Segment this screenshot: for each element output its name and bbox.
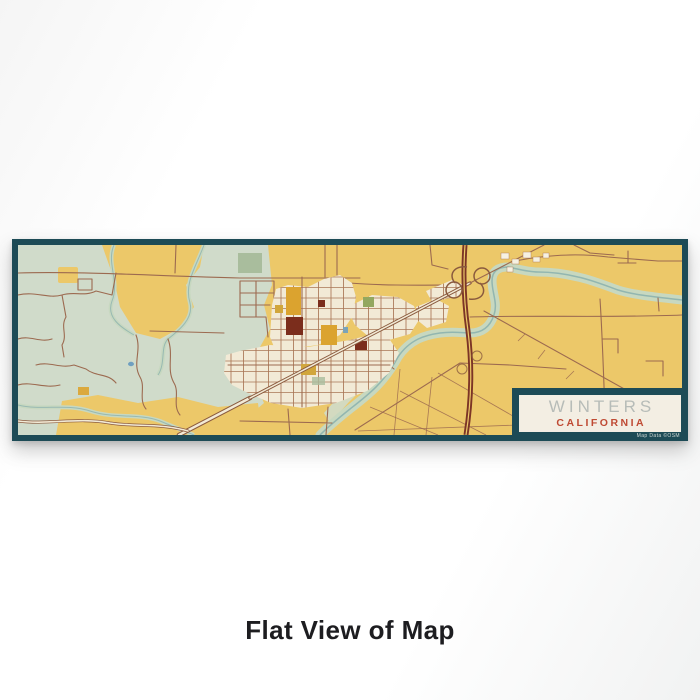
view-caption: Flat View of Map (0, 615, 700, 646)
green-field-block (238, 253, 262, 273)
downtown-block-maroon (286, 317, 303, 335)
state-subtitle: CALIFORNIA (554, 418, 646, 429)
map-attribution: Map Data ©OSM (637, 433, 680, 440)
photo-background: WINTERS CALIFORNIA Map Data ©OSM Flat Vi… (0, 0, 700, 700)
city-title: WINTERS (545, 398, 655, 415)
map-title-card-inner: WINTERS CALIFORNIA (519, 395, 681, 432)
map-title-card: WINTERS CALIFORNIA Map Data ©OSM (512, 388, 688, 441)
map-print: WINTERS CALIFORNIA Map Data ©OSM (12, 239, 688, 441)
